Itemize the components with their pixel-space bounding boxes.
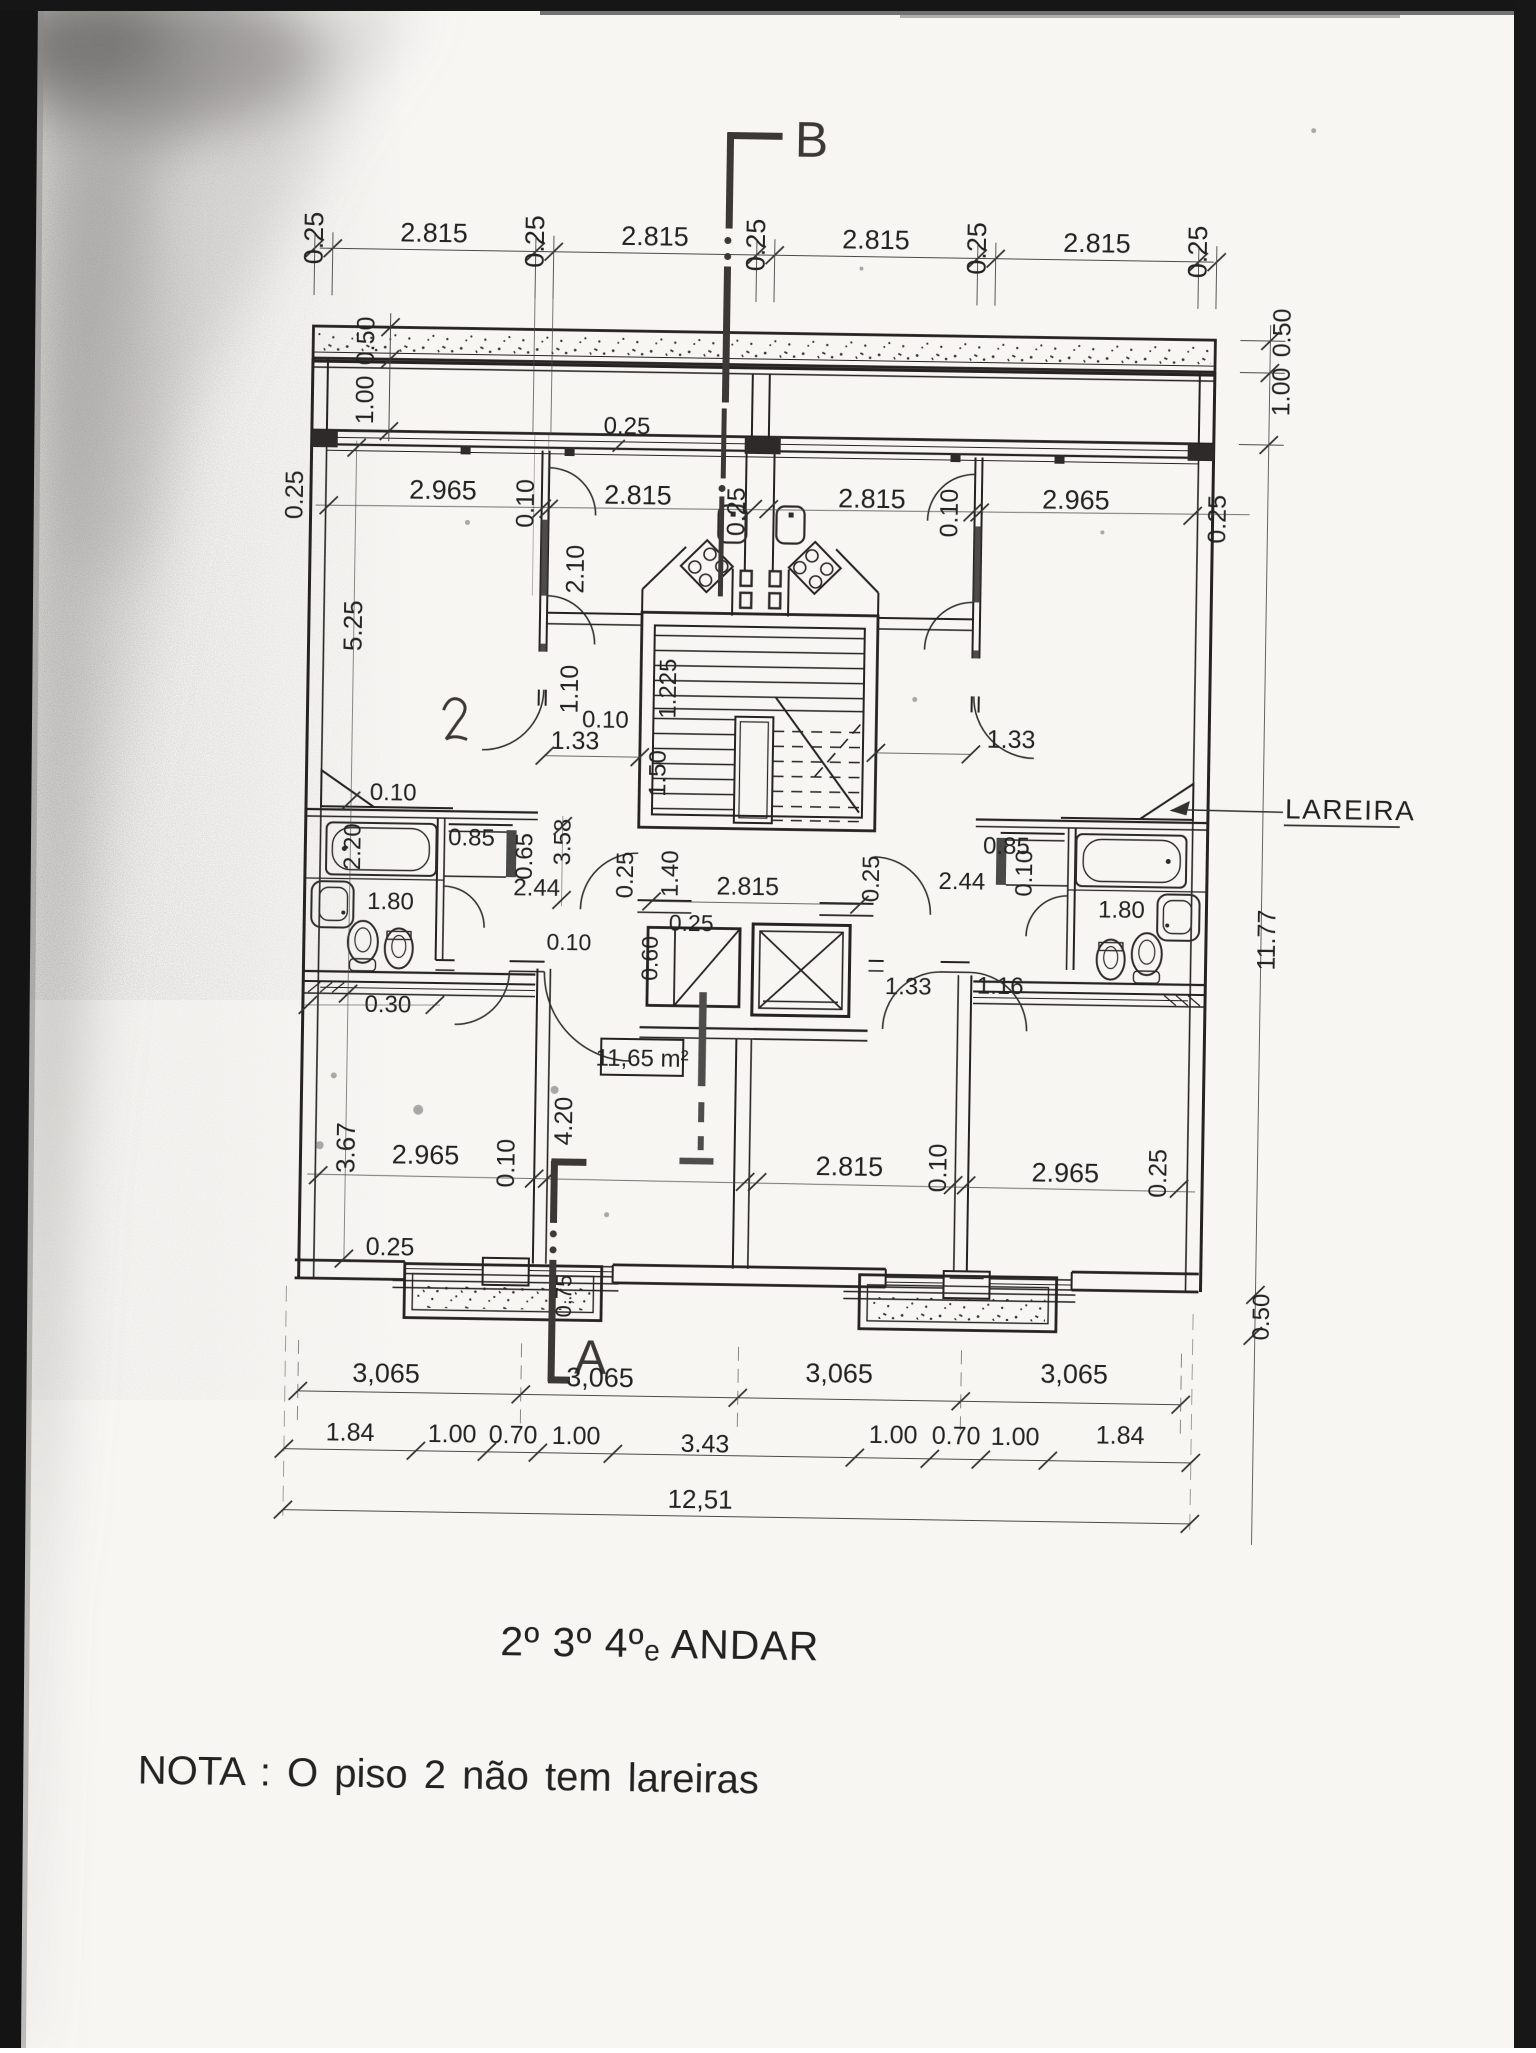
- svg-text:1.40: 1.40: [657, 850, 685, 897]
- svg-text:0.50: 0.50: [352, 316, 381, 365]
- svg-text:0.10: 0.10: [370, 779, 417, 807]
- svg-text:0.25: 0.25: [299, 211, 330, 264]
- svg-text:3.67: 3.67: [330, 1122, 361, 1173]
- svg-text:0.25: 0.25: [722, 487, 751, 536]
- svg-text:1.84: 1.84: [326, 1418, 375, 1447]
- svg-text:0.10: 0.10: [492, 1139, 521, 1188]
- svg-text:3.43: 3.43: [680, 1430, 729, 1459]
- svg-text:2.20: 2.20: [339, 823, 367, 870]
- svg-text:1.50: 1.50: [644, 750, 672, 797]
- svg-text:0.10: 0.10: [546, 929, 591, 956]
- svg-text:LAREIRA: LAREIRA: [1285, 793, 1416, 826]
- svg-text:1.33: 1.33: [987, 726, 1036, 755]
- svg-text:4.20: 4.20: [550, 1096, 579, 1145]
- svg-text:11.77: 11.77: [1253, 909, 1282, 970]
- svg-text:0.85: 0.85: [448, 824, 495, 852]
- svg-text:3,065: 3,065: [1040, 1359, 1108, 1390]
- svg-text:0.50: 0.50: [1248, 1293, 1276, 1340]
- svg-text:1.00: 1.00: [428, 1420, 477, 1449]
- svg-text:3,065: 3,065: [805, 1358, 873, 1389]
- svg-text:2.815: 2.815: [621, 221, 689, 252]
- svg-text:0.70: 0.70: [489, 1421, 538, 1450]
- svg-text:2.10: 2.10: [561, 545, 590, 594]
- svg-text:0.25: 0.25: [1203, 495, 1232, 544]
- svg-text:1.10: 1.10: [555, 665, 584, 714]
- svg-text:0.25: 0.25: [858, 855, 886, 902]
- svg-text:2.815: 2.815: [842, 224, 910, 255]
- svg-text:2.815: 2.815: [1063, 228, 1131, 259]
- svg-text:1.00: 1.00: [869, 1421, 918, 1450]
- svg-text:1.00: 1.00: [552, 1422, 601, 1451]
- svg-text:0.25: 0.25: [740, 218, 771, 271]
- svg-text:2.965: 2.965: [1042, 484, 1110, 515]
- svg-text:3,065: 3,065: [352, 1358, 420, 1389]
- svg-text:0.10: 0.10: [1011, 850, 1039, 897]
- svg-text:0.25: 0.25: [1182, 225, 1213, 278]
- svg-text:0.25: 0.25: [1144, 1149, 1173, 1198]
- svg-text:0.50: 0.50: [1268, 308, 1297, 357]
- svg-text:2.965: 2.965: [392, 1139, 460, 1170]
- svg-text:5.25: 5.25: [337, 600, 368, 651]
- svg-text:0.70: 0.70: [932, 1422, 981, 1451]
- svg-text:1.00: 1.00: [991, 1423, 1040, 1452]
- svg-text:3,065: 3,065: [566, 1362, 634, 1393]
- svg-text:0.25: 0.25: [603, 413, 650, 441]
- svg-text:2.815: 2.815: [815, 1151, 883, 1182]
- svg-text:2.965: 2.965: [409, 475, 477, 506]
- svg-text:0.10: 0.10: [511, 479, 540, 528]
- svg-text:2.965: 2.965: [1031, 1157, 1099, 1188]
- svg-text:1.84: 1.84: [1096, 1421, 1145, 1450]
- svg-text:2.815: 2.815: [400, 217, 468, 248]
- svg-text:1.80: 1.80: [367, 888, 414, 916]
- svg-text:0.10: 0.10: [935, 488, 964, 537]
- svg-text:1.16: 1.16: [977, 973, 1024, 1001]
- svg-text:0.25: 0.25: [281, 470, 310, 519]
- svg-text:1.00: 1.00: [1267, 367, 1296, 416]
- svg-text:0.25: 0.25: [669, 910, 714, 937]
- svg-text:0.25: 0.25: [612, 851, 640, 898]
- svg-text:1.33: 1.33: [550, 727, 599, 756]
- svg-text:0.25: 0.25: [519, 215, 550, 268]
- svg-text:B: B: [794, 112, 828, 169]
- svg-text:2.815: 2.815: [604, 480, 672, 511]
- svg-text:0.25: 0.25: [961, 222, 992, 275]
- svg-text:1.00: 1.00: [351, 375, 380, 424]
- svg-text:0.60: 0.60: [636, 936, 663, 981]
- svg-text:0.10: 0.10: [924, 1143, 953, 1192]
- svg-text:1.225: 1.225: [654, 658, 682, 718]
- svg-text:11,65 m²: 11,65 m²: [595, 1045, 688, 1073]
- svg-text:0.65: 0.65: [511, 833, 539, 880]
- svg-text:12,51: 12,51: [667, 1484, 733, 1515]
- svg-text:2.815: 2.815: [838, 483, 906, 514]
- svg-text:1.80: 1.80: [1098, 896, 1145, 924]
- svg-text:2.44: 2.44: [513, 874, 560, 902]
- svg-text:2.44: 2.44: [938, 868, 985, 896]
- svg-text:2º 3º 4ºₑ ANDAR: 2º 3º 4ºₑ ANDAR: [500, 1618, 820, 1669]
- svg-text:1.33: 1.33: [885, 973, 932, 1001]
- svg-text:2.815: 2.815: [716, 872, 779, 901]
- svg-text:0.25: 0.25: [366, 1233, 415, 1262]
